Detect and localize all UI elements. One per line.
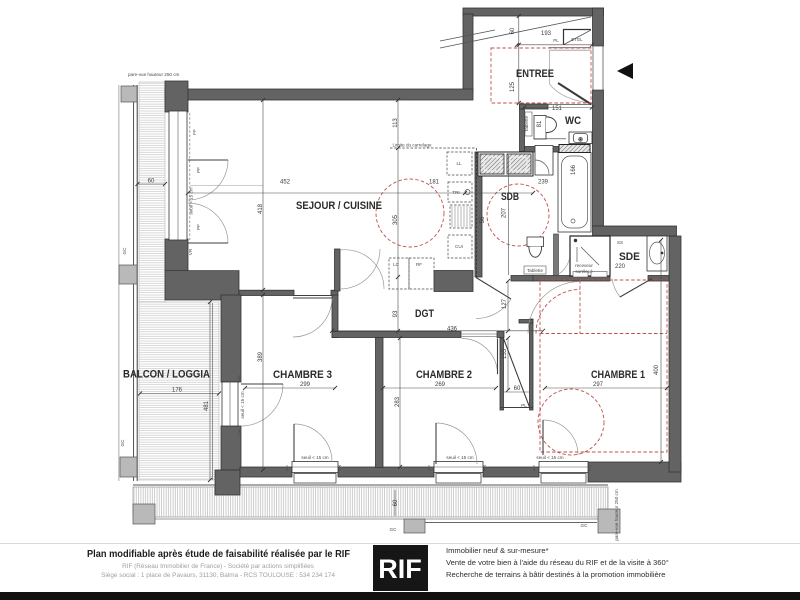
svg-text:166: 166 bbox=[571, 164, 577, 175]
svg-text:CHAMBRE 2: CHAMBRE 2 bbox=[416, 369, 472, 381]
svg-text:ETEL: ETEL bbox=[571, 37, 583, 42]
svg-text:PL: PL bbox=[553, 38, 559, 43]
svg-text:400: 400 bbox=[654, 364, 660, 375]
svg-text:283: 283 bbox=[395, 396, 401, 407]
svg-text:56: 56 bbox=[480, 216, 486, 223]
svg-text:207: 207 bbox=[502, 207, 508, 218]
svg-text:SEJOUR / CUISINE: SEJOUR / CUISINE bbox=[296, 200, 382, 212]
svg-text:ENTREE: ENTREE bbox=[516, 68, 554, 80]
svg-text:Plan modifiable après étude de: Plan modifiable après étude de faisabili… bbox=[87, 549, 350, 560]
svg-text:LC: LC bbox=[393, 262, 400, 267]
svg-text:PF: PF bbox=[237, 375, 242, 381]
svg-text:Vente de votre bien à l'aide d: Vente de votre bien à l'aide du réseau d… bbox=[446, 558, 669, 567]
svg-text:GC: GC bbox=[120, 439, 125, 447]
svg-text:418: 418 bbox=[258, 203, 264, 214]
svg-text:239: 239 bbox=[538, 180, 549, 186]
svg-text:297: 297 bbox=[593, 382, 604, 388]
svg-text:seuil < 15 cm: seuil < 15 cm bbox=[446, 455, 473, 460]
svg-text:PF: PF bbox=[196, 224, 201, 230]
svg-text:113: 113 bbox=[393, 118, 399, 128]
svg-text:receveur: receveur bbox=[575, 263, 593, 268]
svg-text:193: 193 bbox=[541, 31, 552, 37]
svg-text:60: 60 bbox=[148, 179, 155, 185]
svg-text:Recherche de terrains à bâtir: Recherche de terrains à bâtir destinés à… bbox=[446, 570, 665, 579]
svg-text:RF: RF bbox=[416, 262, 422, 267]
svg-text:BALCON / LOGGIA: BALCON / LOGGIA bbox=[123, 369, 210, 381]
svg-text:pare-vue hauteur 250 cm: pare-vue hauteur 250 cm bbox=[614, 489, 619, 541]
svg-text:481: 481 bbox=[204, 400, 210, 411]
svg-text:436: 436 bbox=[447, 327, 458, 333]
svg-text:VR: VR bbox=[337, 464, 342, 471]
svg-text:GC: GC bbox=[390, 527, 398, 532]
svg-text:surélevé: surélevé bbox=[575, 269, 593, 274]
svg-text:Tablette: Tablette bbox=[527, 268, 544, 273]
svg-text:SS: SS bbox=[617, 240, 623, 245]
svg-text:PF: PF bbox=[285, 465, 290, 471]
svg-text:SDB: SDB bbox=[501, 191, 519, 203]
svg-text:389: 389 bbox=[258, 351, 264, 362]
svg-text:TRI: TRI bbox=[452, 190, 459, 195]
svg-text:VR: VR bbox=[237, 428, 242, 435]
svg-text:DGT: DGT bbox=[415, 308, 434, 320]
svg-text:Siège social : 1 place de Pava: Siège social : 1 place de Pavaurs, 31130… bbox=[101, 572, 335, 579]
svg-text:60: 60 bbox=[510, 27, 516, 34]
svg-text:PF: PF bbox=[532, 465, 537, 471]
svg-text:LL: LL bbox=[456, 161, 462, 166]
svg-text:CHAMBRE 1: CHAMBRE 1 bbox=[591, 369, 645, 381]
svg-text:60: 60 bbox=[393, 499, 399, 506]
svg-text:Limite du carrelage: Limite du carrelage bbox=[392, 143, 432, 148]
svg-text:155: 155 bbox=[502, 348, 508, 359]
svg-text:93: 93 bbox=[393, 310, 399, 317]
svg-text:452: 452 bbox=[280, 180, 291, 186]
svg-text:seuil < 15 cm: seuil < 15 cm bbox=[240, 391, 245, 418]
svg-text:GC: GC bbox=[122, 247, 127, 255]
svg-text:127: 127 bbox=[502, 298, 508, 309]
svg-text:CHAMBRE 3: CHAMBRE 3 bbox=[273, 369, 332, 381]
svg-text:seuil < 15 cm: seuil < 15 cm bbox=[301, 455, 328, 460]
svg-text:RIF: RIF bbox=[378, 554, 422, 584]
svg-text:151: 151 bbox=[552, 106, 563, 112]
svg-text:125: 125 bbox=[510, 81, 516, 92]
svg-text:FF: FF bbox=[192, 129, 197, 135]
svg-text:GC: GC bbox=[581, 523, 589, 528]
svg-text:176: 176 bbox=[172, 388, 183, 394]
svg-text:299: 299 bbox=[300, 382, 311, 388]
svg-text:CUI: CUI bbox=[455, 244, 463, 249]
svg-text:VR: VR bbox=[587, 464, 592, 471]
svg-text:VR: VR bbox=[482, 464, 487, 471]
svg-text:PF: PF bbox=[427, 465, 432, 471]
svg-text:seuil < 15 cm: seuil < 15 cm bbox=[536, 455, 563, 460]
svg-text:PF: PF bbox=[196, 167, 201, 173]
svg-text:seuil < 15 cm: seuil < 15 cm bbox=[189, 187, 194, 214]
svg-text:RIF (Réseau Immobilier de Fran: RIF (Réseau Immobilier de France) - Soci… bbox=[122, 563, 314, 570]
svg-text:60: 60 bbox=[514, 386, 521, 392]
svg-text:pare-vue hauteur 250 cm: pare-vue hauteur 250 cm bbox=[128, 72, 180, 77]
svg-text:81: 81 bbox=[537, 120, 543, 127]
svg-text:Tablette: Tablette bbox=[524, 116, 529, 133]
svg-text:Immobilier neuf & sur-mesure*: Immobilier neuf & sur-mesure* bbox=[446, 546, 549, 555]
svg-text:269: 269 bbox=[435, 382, 446, 388]
svg-text:181: 181 bbox=[429, 180, 440, 186]
svg-text:305: 305 bbox=[393, 214, 399, 225]
svg-text:VR: VR bbox=[188, 248, 193, 255]
svg-text:220: 220 bbox=[615, 264, 626, 270]
svg-text:WC: WC bbox=[565, 115, 581, 127]
svg-text:PL: PL bbox=[521, 403, 527, 408]
svg-text:SDE: SDE bbox=[619, 251, 640, 263]
